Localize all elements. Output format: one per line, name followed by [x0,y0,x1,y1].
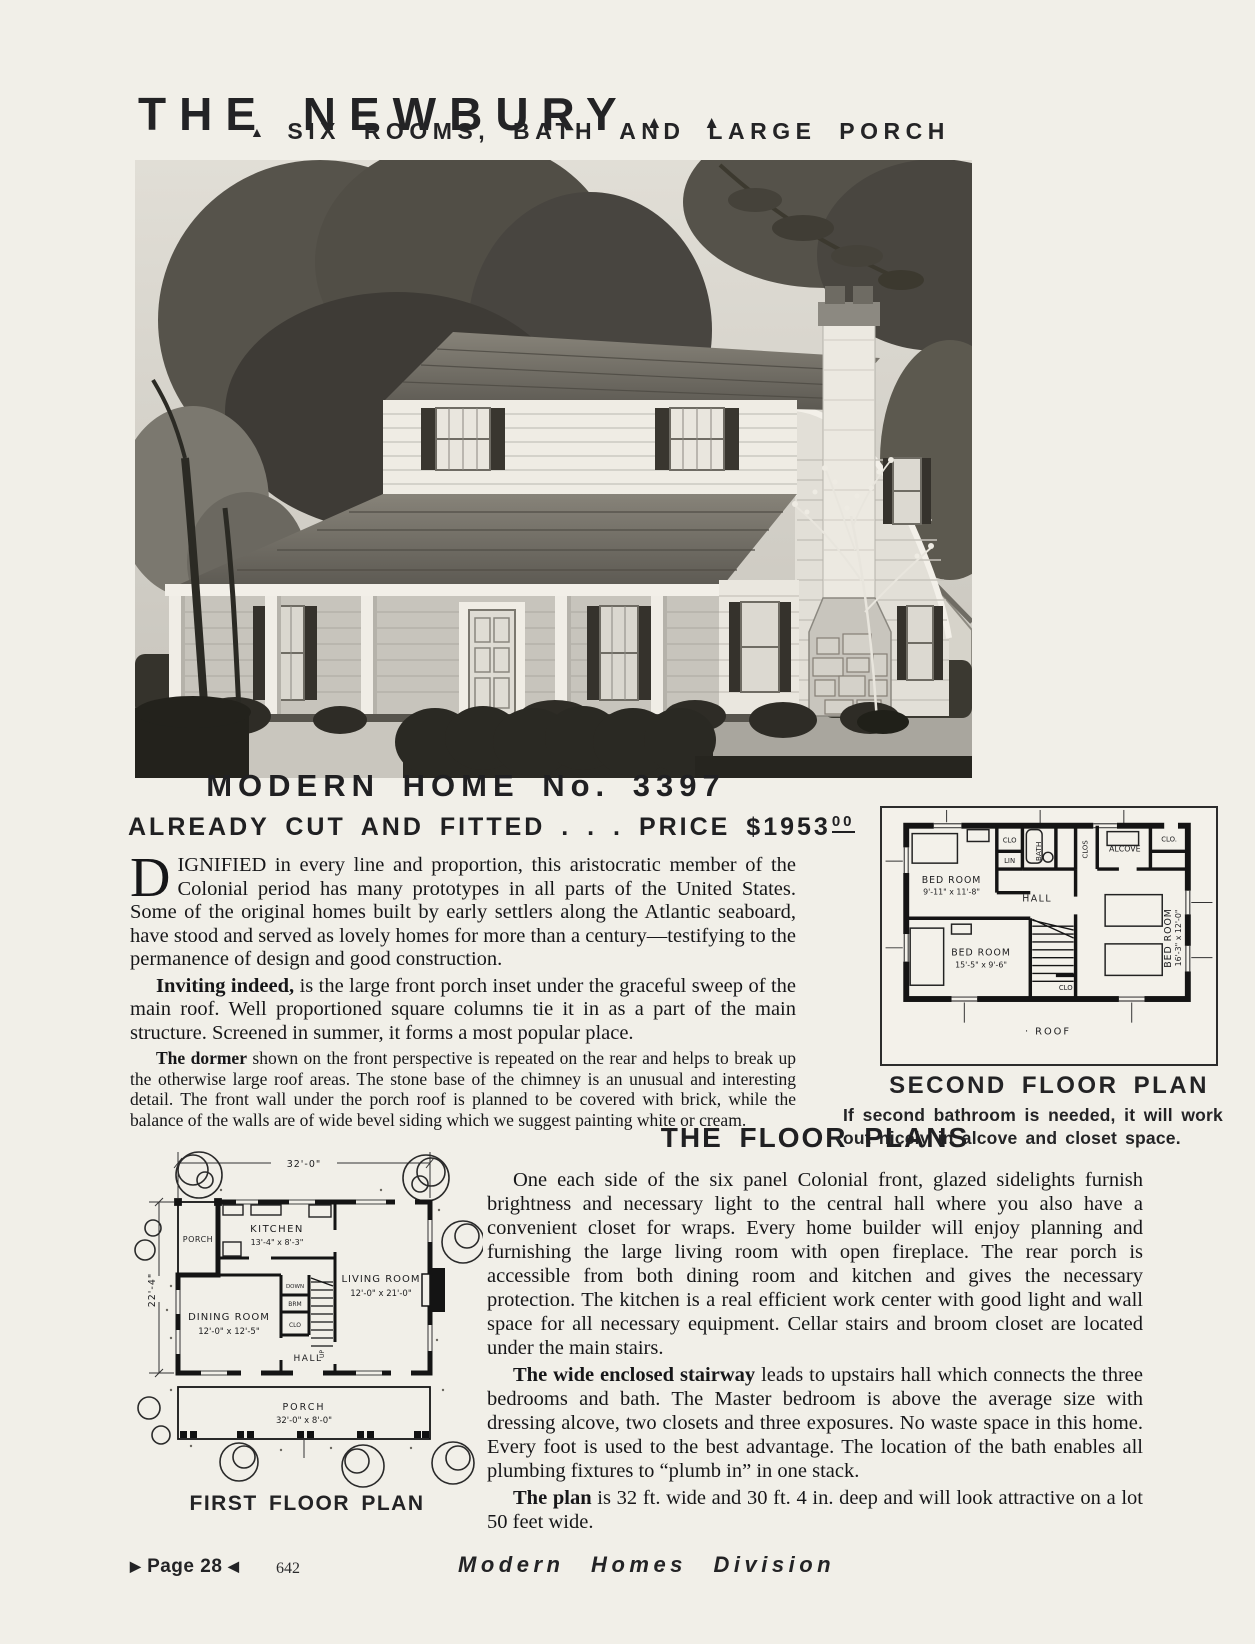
house-illustration-svg [135,160,972,778]
first-floor-plan-figure: 32'-0" 22'-4" [131,1090,483,1492]
label-dining: DINING ROOM [188,1312,270,1323]
label-lin: LIN [1004,857,1015,865]
floor-plans-paragraph-1: One each side of the six panel Colonial … [487,1168,1143,1360]
label-dining-dims: 12'-0" x 12'-5" [198,1327,260,1337]
arrow-right-icon: ▶ [130,1558,141,1574]
front-door [459,602,525,716]
floor-plans-paragraph-2: The wide enclosed stairway leads to upst… [487,1363,1143,1483]
porch-window-left [253,606,317,700]
label-up: UP [319,1350,326,1358]
label-kitchen: KITCHEN [250,1224,304,1235]
label-hall-2f: HALL [1022,894,1052,905]
label-alcove: ALCOVE [1109,844,1141,853]
first-floor-plan-caption: FIRST FLOOR PLAN [131,1492,483,1516]
floor-plans-article: THE FLOOR PLANS One each side of the six… [487,1122,1143,1537]
front-wall-right [719,580,799,716]
porch-fascia [165,584,725,596]
model-number-heading: MODERN HOME No. 3397 [128,768,804,804]
label-clo-bottom: CLO [1059,984,1073,992]
second-floor-plan-svg: BED ROOM 9'-11" x 11'-8" BED ROOM 15'-5"… [882,808,1216,1064]
first-floor-plan-svg: 32'-0" 22'-4" [131,1090,483,1492]
label-width-dim: 32'-0" [287,1159,322,1170]
paragraph-3-lead: The dormer [156,1048,247,1068]
label-depth-dim: 22'-4" [147,1273,158,1308]
side-window-upper [883,458,931,524]
division-name: Modern Homes Division [458,1552,835,1578]
description-paragraph-2: Inviting indeed, is the large front porc… [130,975,796,1046]
label-porch-rear: PORCH [183,1235,213,1244]
label-living: LIVING ROOM [341,1274,420,1285]
label-brm: BRM [288,1301,301,1308]
price-cents: 00 [832,813,855,833]
label-porch-front-dims: 32'-0" x 8'-0" [276,1416,332,1426]
arrow-left-icon: ◀ [228,1558,239,1574]
page-number: ▶ Page 28 ◀ [130,1556,239,1578]
label-clo-1f: CLO [289,1322,301,1329]
drop-cap: D [130,854,177,899]
label-down: DOWN [286,1284,304,1290]
floor-plans-paragraph-3-lead: The plan [513,1487,592,1509]
second-floor-plan-figure: BED ROOM 9'-11" x 11'-8" BED ROOM 15'-5"… [880,806,1218,1066]
triangle-icon: ▲ [250,124,269,140]
label-bath: BATH [1034,842,1043,862]
house-illustration [135,160,972,778]
label-clo-left: CLO [1003,836,1017,844]
floor-plans-paragraph-2-lead: The wide enclosed stairway [513,1364,755,1386]
description-paragraph-1: DIGNIFIED in every line and proportion, … [130,854,796,972]
label-bedroom2-dims: 15'-5" x 9'-6" [955,961,1007,970]
page-number-text: Page 28 [147,1556,222,1577]
price-text: ALREADY CUT AND FITTED . . . PRICE $1953 [128,813,831,841]
label-bedroom3: BED ROOM [1163,908,1174,968]
paragraph-2-lead: Inviting indeed, [156,975,294,997]
side-window-lower [897,606,943,680]
fireplace [430,1268,445,1312]
label-clo-right: CLO. [1161,835,1177,843]
label-kitchen-dims: 13'-4" x 8'-3" [251,1238,304,1247]
label-bedroom3-dims: 16'-3" x 12'-0" [1174,910,1183,967]
label-porch-front: PORCH [282,1402,325,1413]
floor-plans-heading: THE FLOOR PLANS [487,1122,1143,1154]
label-living-dims: 12'-0" x 21'-0" [350,1289,412,1299]
description-paragraph-1-text: IGNIFIED in every line and proportion, t… [130,854,796,970]
label-bedroom1: BED ROOM [922,875,982,886]
model-heading-block: MODERN HOME No. 3397 ALREADY CUT AND FIT… [128,768,804,842]
floor-plans-paragraph-3: The plan is 32 ft. wide and 30 ft. 4 in.… [487,1486,1143,1534]
label-roof: · ROOF [1025,1026,1071,1037]
catalog-page: THE NEWBURY▲ ▲ ▲SIX ROOMS, BATH AND LARG… [0,0,1255,1644]
price-line: ALREADY CUT AND FITTED . . . PRICE $1953… [128,813,804,842]
label-bedroom1-dims: 9'-11" x 11'-8" [923,888,980,897]
page-subtitle: ▲SIX ROOMS, BATH AND LARGE PORCH [250,118,950,145]
chimney-stone-base [809,598,891,716]
second-floor-plan-caption: SECOND FLOOR PLAN [876,1072,1222,1100]
porch-window-right [587,606,651,700]
upper-window-left [421,408,505,470]
page-subtitle-text: SIX ROOMS, BATH AND LARGE PORCH [287,118,950,144]
catalog-number: 642 [276,1560,300,1578]
label-bedroom2: BED ROOM [951,948,1011,959]
label-clos: CLOS [1081,840,1089,858]
upper-window-right [655,408,739,470]
